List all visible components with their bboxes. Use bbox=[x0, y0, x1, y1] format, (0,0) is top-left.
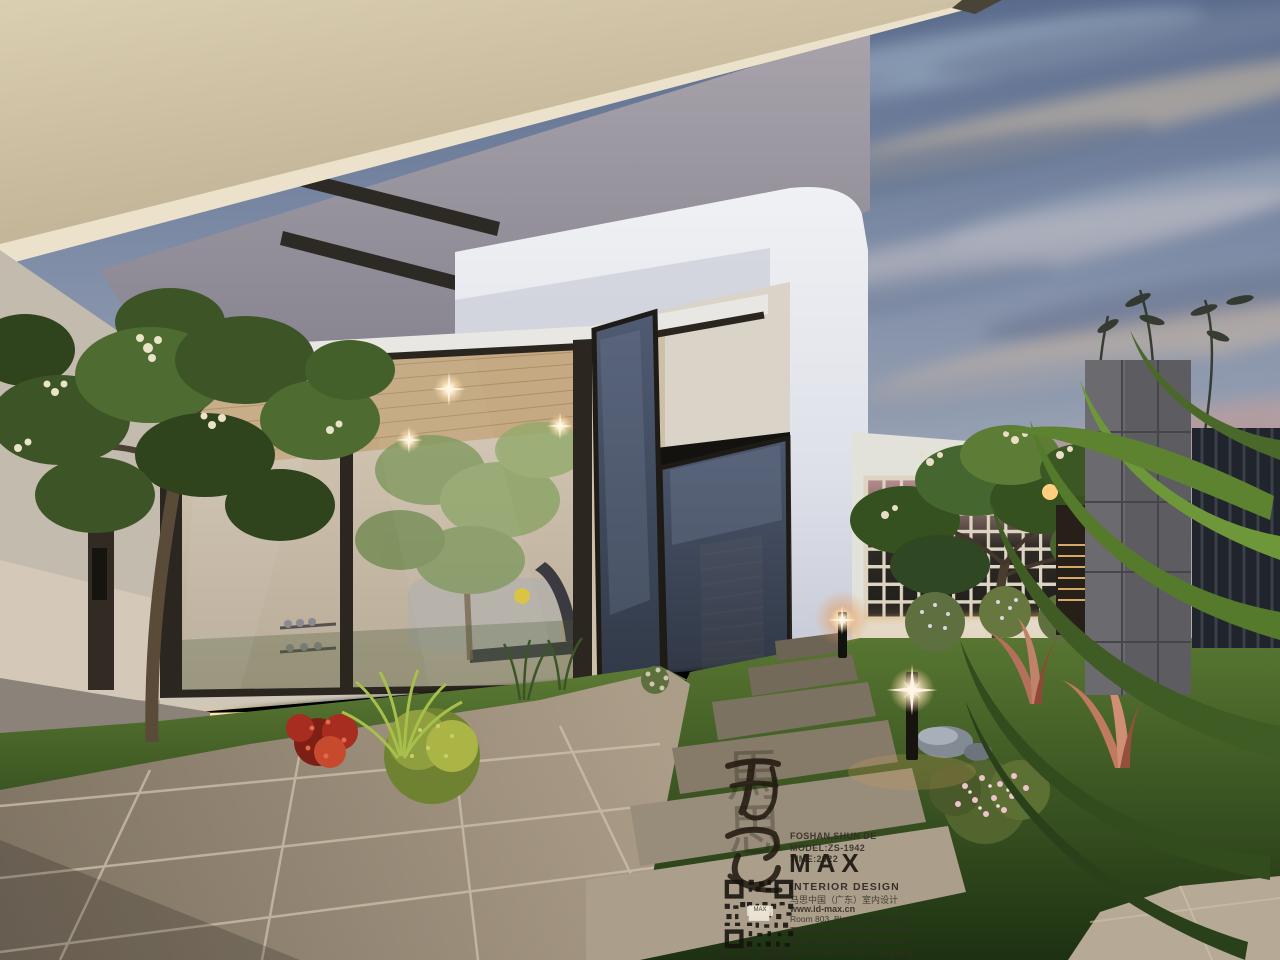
calligraphy-characters: 馬 思 bbox=[714, 749, 797, 892]
address-line: District,Foshan City, Guangdong bbox=[790, 948, 917, 959]
address-line: Road, Guicheng Street, Nanhai bbox=[790, 936, 917, 947]
address-line: Room 803, Block A, Building 5, bbox=[790, 914, 917, 925]
interior-design-label: INTERIOR DESIGN bbox=[790, 881, 900, 893]
scene-graphics bbox=[0, 0, 1280, 960]
pale-flower-cluster bbox=[641, 666, 669, 694]
qr-center-label: MAX bbox=[747, 906, 773, 916]
website-url: www.id-max.cn bbox=[790, 904, 855, 914]
wall-sconce bbox=[92, 548, 107, 600]
max-logo: MAX bbox=[789, 848, 865, 879]
address-line: Tianan Cyber Park, No.1 Jianping bbox=[790, 925, 917, 936]
address-block: Room 803, Block A, Building 5, Tianan Cy… bbox=[790, 914, 917, 960]
architectural-render: 馬 思 FOSHAN,SHUN DE MODEL:ZS-1942 TIME:20… bbox=[0, 0, 1280, 960]
location-line: FOSHAN,SHUN DE bbox=[790, 831, 877, 843]
calligraphy-text: 馬 思 bbox=[716, 750, 794, 890]
qr-caption: 扫一扫，了解更多 bbox=[719, 947, 795, 960]
